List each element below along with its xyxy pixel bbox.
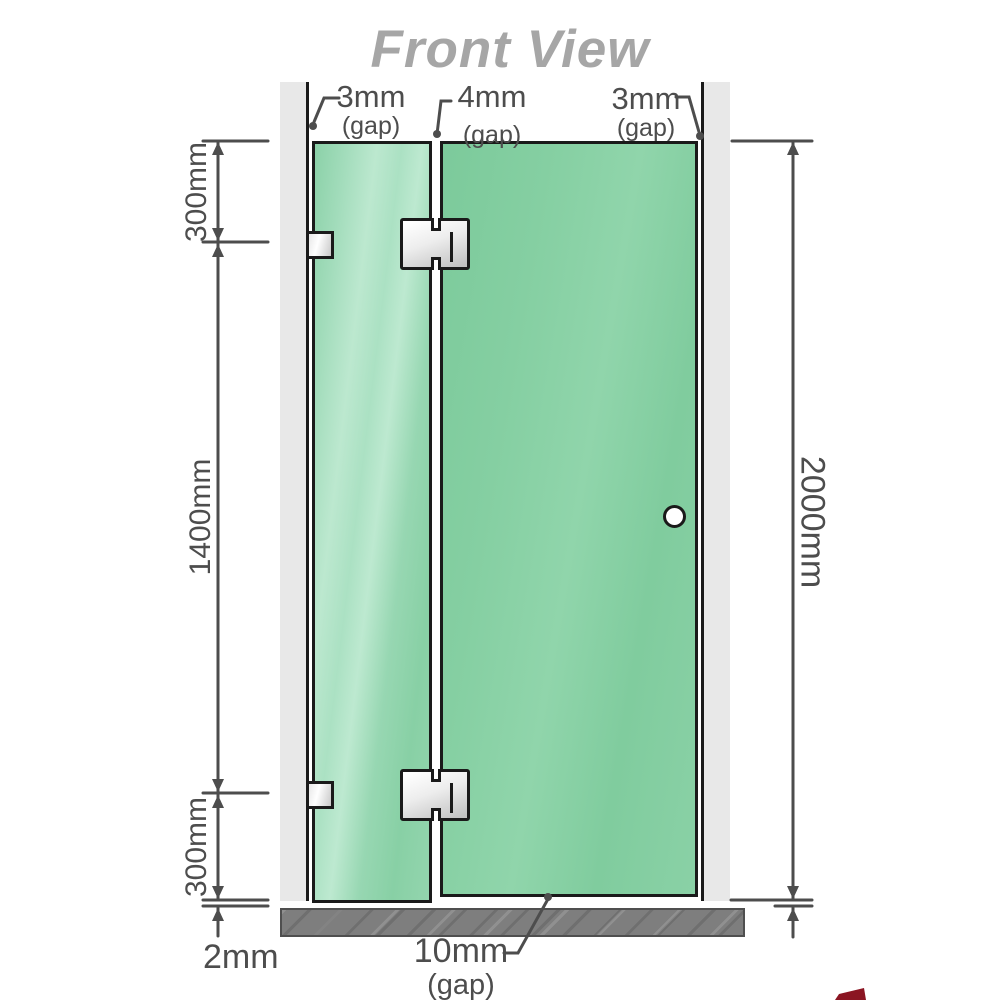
gap-suffix: (gap)	[603, 116, 689, 141]
gap-suffix: (gap)	[413, 971, 509, 1000]
gap-label-top-left: 3mm (gap)	[327, 81, 415, 139]
gap-value: 10mm	[413, 934, 509, 968]
gap-value: 3mm	[603, 83, 689, 114]
glass-hinge-bottom	[400, 769, 470, 821]
wall-bracket-top	[306, 231, 334, 259]
dim-label-bottom-left: 300mm	[180, 797, 214, 897]
diagram-title: Front View	[355, 22, 665, 78]
hinge-tab-edge	[450, 232, 453, 262]
gap-value: 4mm	[446, 81, 538, 112]
gap-label-top-right: 3mm (gap)	[603, 83, 689, 141]
left-wall	[280, 82, 309, 901]
door-glass-panel	[440, 141, 698, 897]
hinge-notch	[431, 769, 441, 782]
wall-bracket-bottom	[306, 781, 334, 809]
gap-suffix: (gap)	[327, 114, 415, 139]
dim-label-middle-left: 1400mm	[184, 459, 218, 576]
gap-label-top-middle: 4mm (gap)	[446, 81, 538, 148]
gap-value: 3mm	[327, 81, 415, 112]
hinge-notch	[431, 257, 441, 270]
floor-base	[280, 908, 745, 937]
dim-label-floor-gap: 2mm	[203, 938, 277, 977]
shower-screen-diagram: Front View	[0, 0, 1000, 1000]
logo-fragment	[835, 988, 866, 1000]
door-knob	[663, 505, 686, 528]
hinge-notch	[431, 808, 441, 821]
hinge-notch	[431, 218, 441, 231]
dim-label-overall-height: 2000mm	[793, 456, 832, 588]
hinge-tab-edge	[450, 783, 453, 813]
right-wall	[701, 82, 730, 901]
glass-hinge-top	[400, 218, 470, 270]
dim-label-top-left: 300mm	[180, 142, 214, 242]
gap-suffix: (gap)	[446, 123, 538, 148]
gap-label-bottom-door: 10mm (gap)	[413, 934, 509, 1000]
